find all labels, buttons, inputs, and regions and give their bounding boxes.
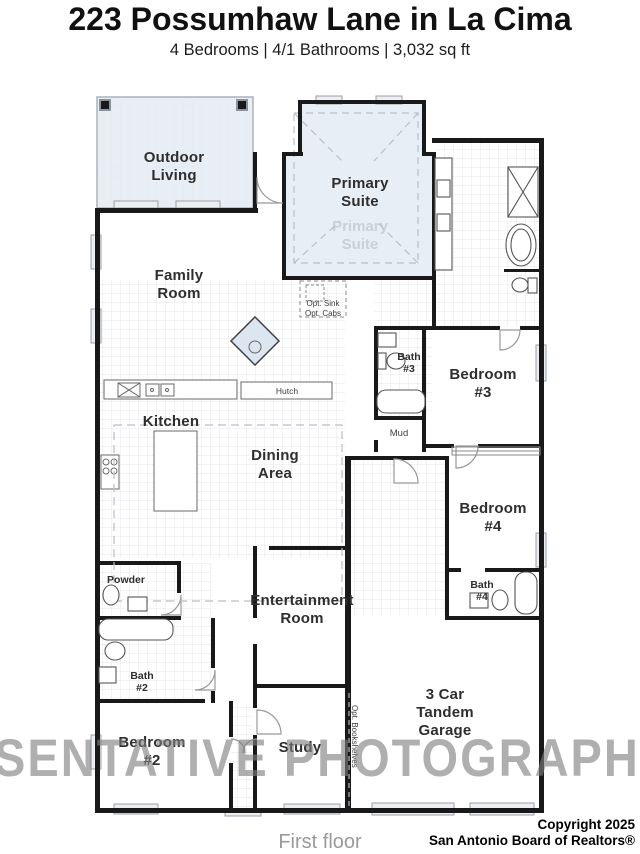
room-label-primary-suite: Primary (331, 175, 389, 192)
svg-text:#2: #2 (136, 682, 148, 694)
room-label-mud: Mud (390, 428, 408, 439)
primary-sink-2 (437, 214, 450, 231)
svg-text:#3: #3 (403, 363, 415, 375)
room-label-family-room: Family (155, 267, 204, 284)
listing-subtitle: 4 Bedrooms | 4/1 Bathrooms | 3,032 sq ft (0, 41, 640, 60)
annotation-hutch: Hutch (276, 386, 298, 396)
annotation-opt-cabs: Opt. Cabs (305, 309, 341, 318)
copyright-notice: Copyright 2025 San Antonio Board of Real… (429, 817, 635, 848)
room-label-bedroom4: Bedroom (459, 500, 526, 517)
primary-suite-area (286, 154, 432, 276)
svg-text:Suite: Suite (341, 193, 379, 210)
copyright-line2: San Antonio Board of Realtors® (429, 833, 635, 849)
bath2-sink (99, 667, 116, 683)
svg-text:#4: #4 (476, 591, 488, 603)
svg-text:Living: Living (151, 167, 196, 184)
svg-text:Room: Room (157, 285, 200, 302)
bath4-toilet (492, 590, 508, 610)
svg-text:#4: #4 (484, 518, 502, 535)
room-label-bedroom3: Bedroom (449, 366, 516, 383)
room-label-powder: Powder (107, 574, 145, 586)
bath3-tub (377, 390, 425, 413)
bath2-toilet (105, 642, 125, 660)
bath2-tub (99, 619, 173, 640)
listing-title: 223 Possumhaw Lane in La Cima (0, 0, 640, 38)
svg-text:#3: #3 (474, 384, 491, 401)
room-label-bath2: Bath (130, 670, 153, 682)
room-label-kitchen: Kitchen (143, 413, 199, 430)
page-header: 223 Possumhaw Lane in La Cima 4 Bedrooms… (0, 0, 640, 60)
room-label-dining-area: Dining (251, 447, 299, 464)
primary-toilet-tank (528, 278, 537, 293)
floor-plan: Outdoor Living Primary Suite Primary Sui… (84, 95, 556, 817)
room-label-primary-suite-ghost: Primary (332, 218, 389, 235)
room-label-outdoor-living: Outdoor (144, 149, 205, 166)
svg-text:Suite: Suite (342, 236, 379, 253)
svg-text:Area: Area (258, 465, 293, 482)
room-label-bath3: Bath (397, 351, 420, 363)
primary-toilet (512, 278, 528, 292)
bath3-sink (378, 333, 396, 347)
room-label-bath4: Bath (470, 579, 493, 591)
primary-sink-1 (437, 180, 450, 197)
powder-sink (128, 597, 147, 611)
svg-text:Room: Room (280, 610, 323, 627)
copyright-line1: Copyright 2025 (429, 817, 635, 833)
annotation-opt-sink: Opt. Sink (307, 299, 341, 308)
room-label-garage: 3 Car (426, 686, 465, 703)
kitchen-island (154, 431, 197, 511)
photography-watermark: SENTATIVE PHOTOGRAPHY (0, 718, 640, 799)
powder-toilet (103, 585, 119, 605)
room-label-entertainment: Entertainment (250, 592, 353, 609)
bath4-tub (515, 572, 537, 614)
